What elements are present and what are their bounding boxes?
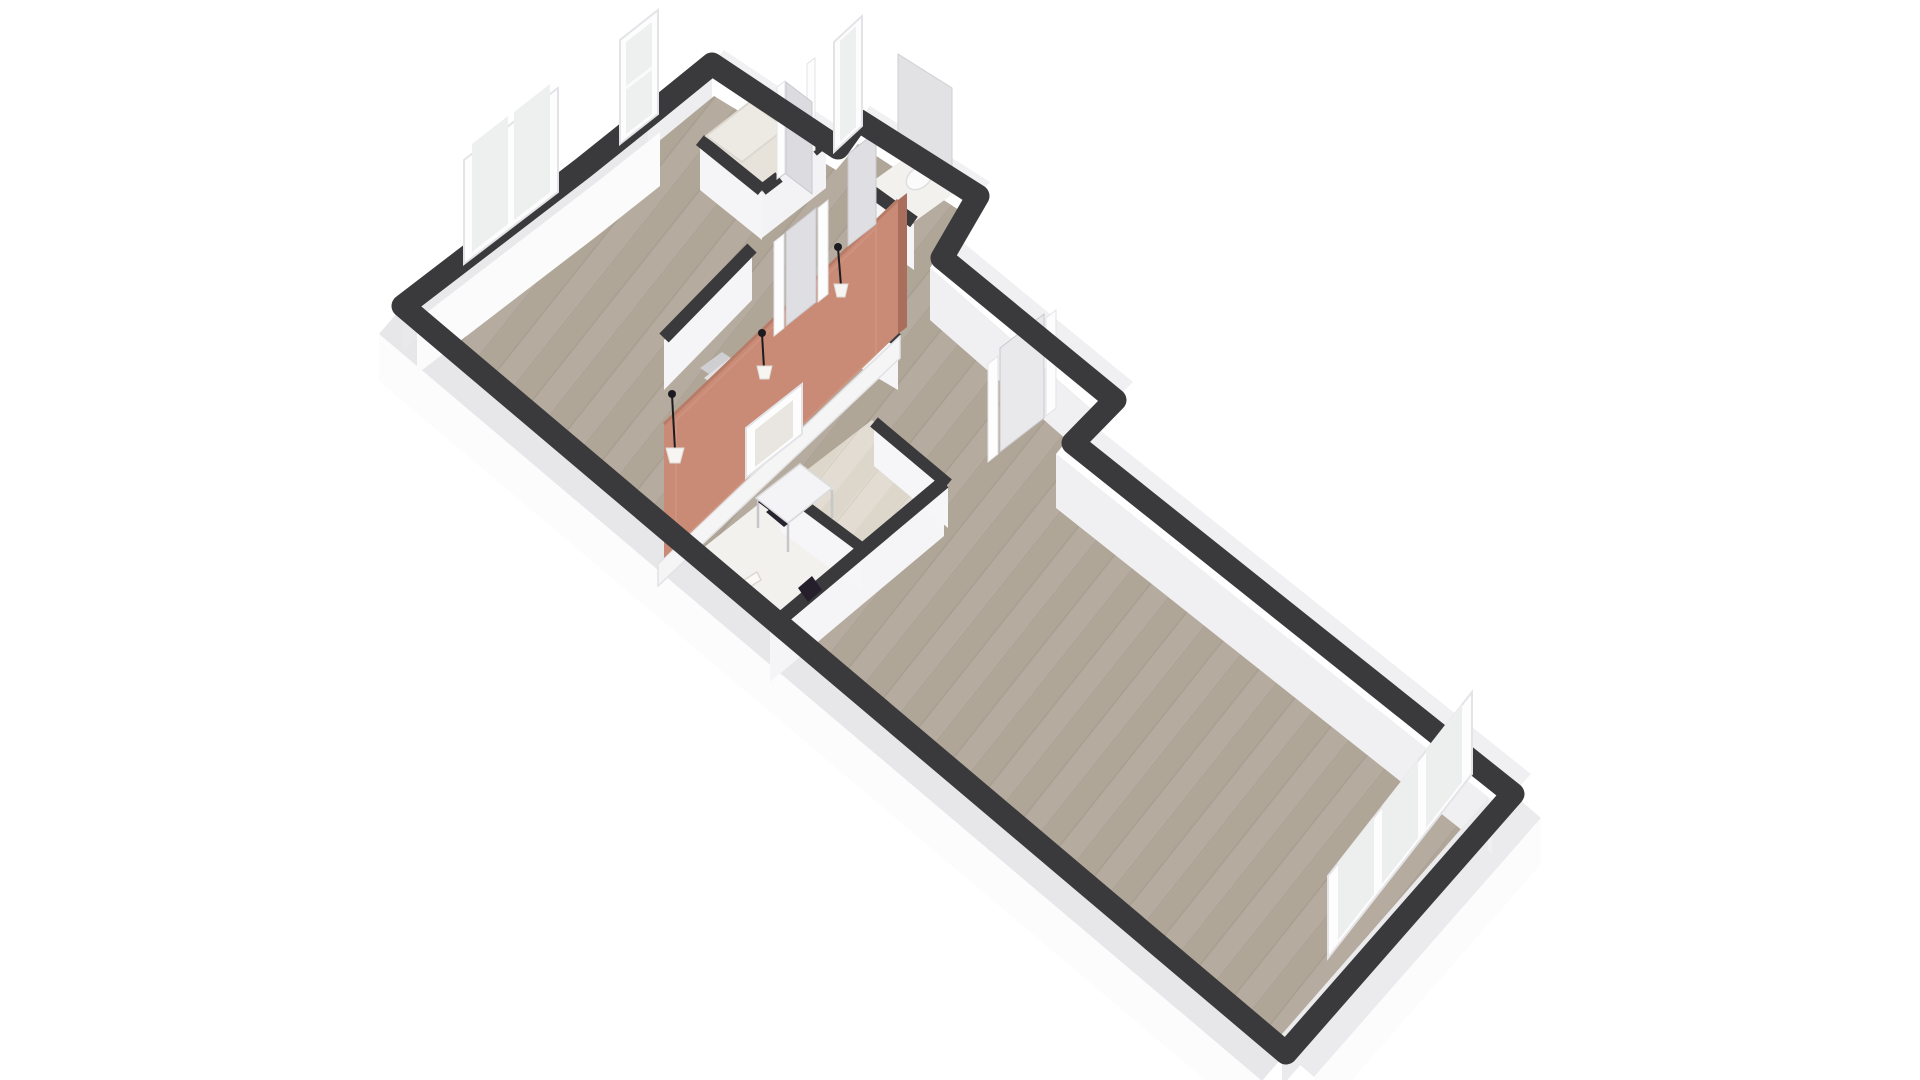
window-pane [840,26,856,142]
large-room-door-frame-left [988,356,998,462]
lamp-shade [757,366,772,379]
lamp-shade [834,284,848,297]
hall-door-frame-right [818,200,828,302]
hall-door-frame-left [774,234,784,336]
accent-wall-side [898,193,907,334]
floorplan-viewport[interactable] [0,0,1920,1080]
floorplan-render [0,0,1920,1080]
